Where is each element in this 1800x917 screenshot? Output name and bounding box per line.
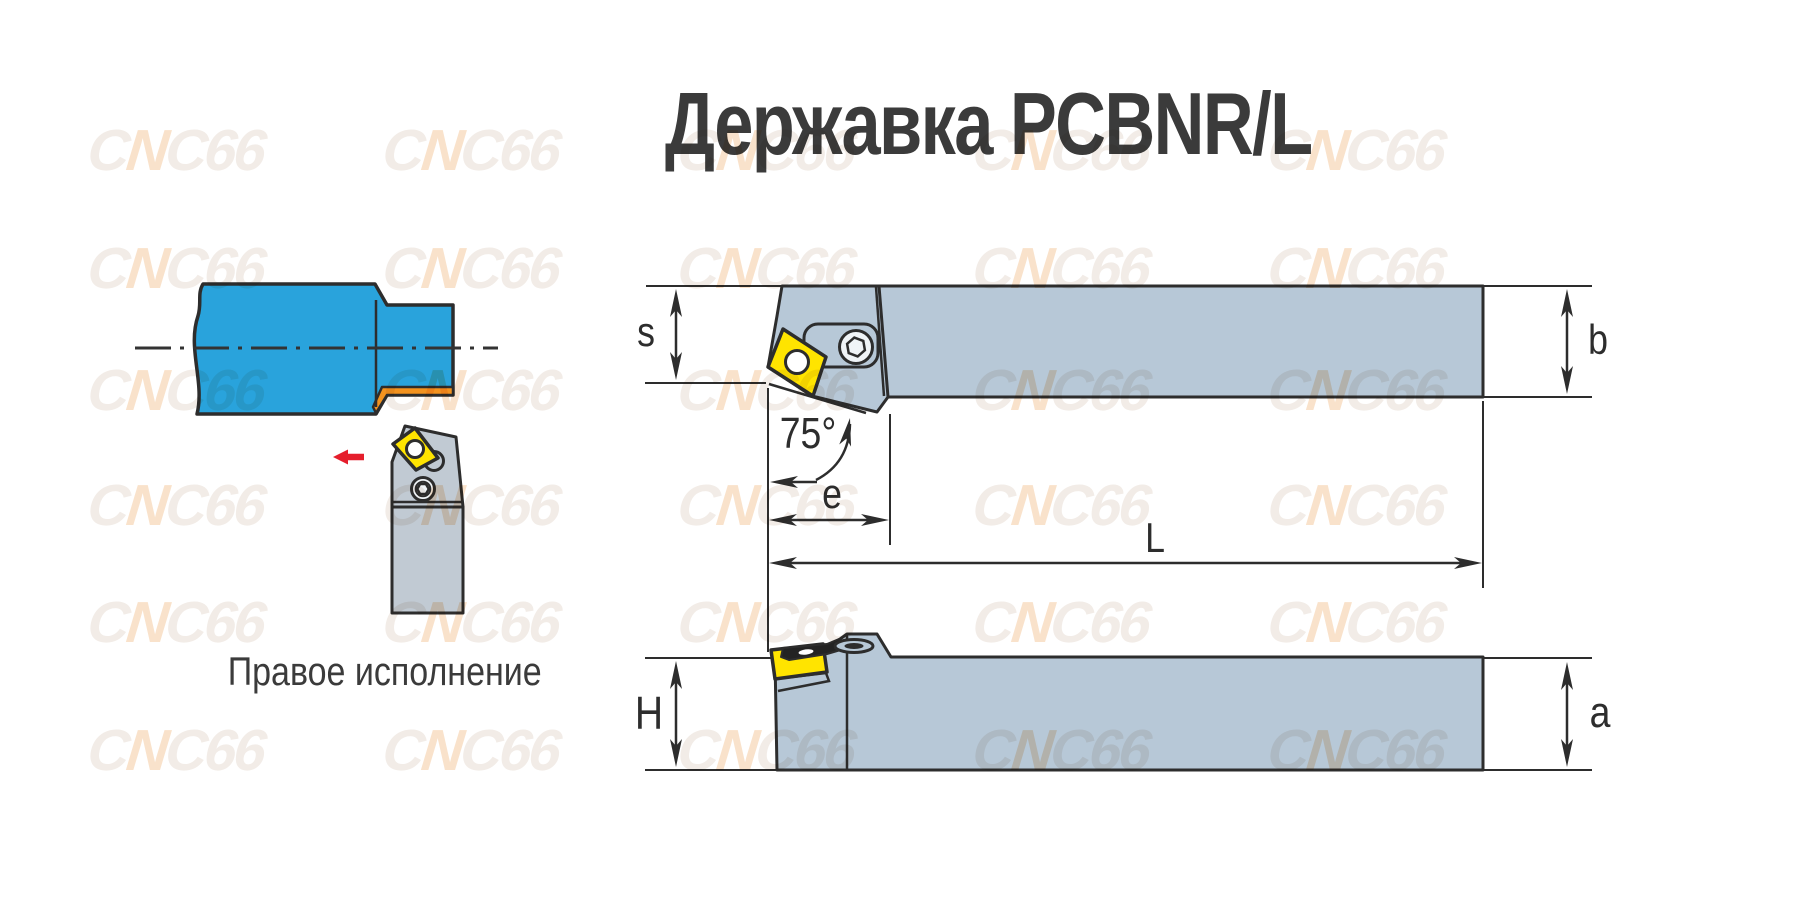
holder-front-illustration xyxy=(392,426,463,613)
angle-label: 75° xyxy=(780,408,837,458)
dim-b: b xyxy=(1561,289,1608,394)
top-view: 75° s b e xyxy=(637,286,1608,652)
feed-direction-arrow xyxy=(333,450,364,465)
dim-H-label: H xyxy=(635,688,663,740)
dim-s-label: s xyxy=(637,309,655,355)
dim-a: a xyxy=(1561,662,1611,767)
dim-b-label: b xyxy=(1588,317,1608,363)
holder-shank xyxy=(392,507,463,613)
catalog-page: Державка PCBNR/L Правое исполнение xyxy=(0,0,1800,917)
top-view-shank xyxy=(877,286,1483,397)
dim-a-label: a xyxy=(1590,687,1611,737)
technical-drawing-svg: 75° s b e xyxy=(0,0,1800,917)
machined-surface xyxy=(373,387,453,413)
dim-L: L xyxy=(769,515,1482,569)
side-view-screw-hole-inner xyxy=(845,643,864,649)
side-view: H a xyxy=(635,634,1611,770)
insert-hole-front xyxy=(407,441,424,458)
top-view-insert-hole xyxy=(786,351,809,374)
dim-L-label: L xyxy=(1145,515,1165,561)
dim-s: s xyxy=(637,289,682,380)
dim-H: H xyxy=(635,661,682,767)
top-view-screw xyxy=(840,331,873,364)
side-view-body xyxy=(775,634,1483,770)
dim-e-label: e xyxy=(822,471,842,517)
